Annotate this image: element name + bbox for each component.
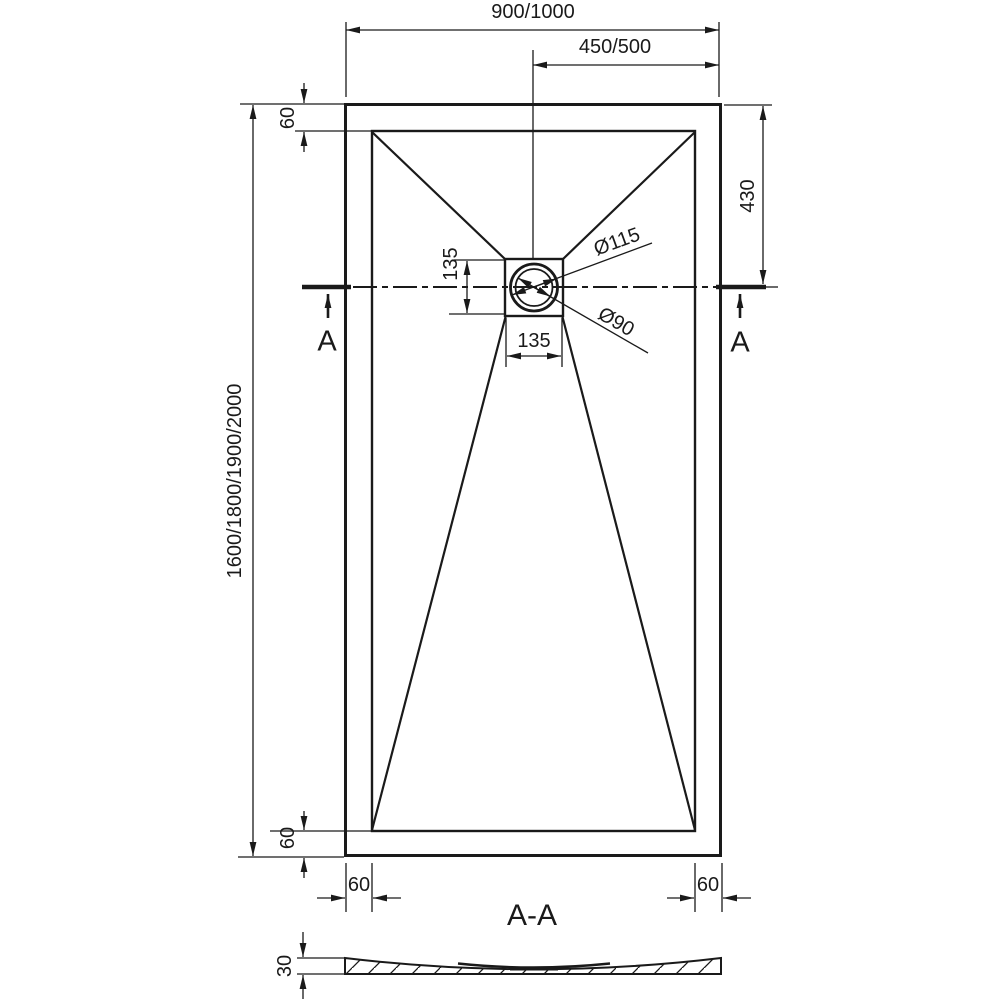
dim-drain-box-width: 135 bbox=[517, 331, 550, 351]
dim-width-to-drain: 450/500 bbox=[579, 37, 651, 57]
dimension-lines bbox=[253, 30, 763, 999]
dim-length-overall: 1600/1800/1900/2000 bbox=[225, 384, 245, 579]
dim-rim-bottom: 60 bbox=[278, 827, 298, 849]
dim-drain-offset-right: 430 bbox=[738, 179, 758, 212]
section-marker-right: A bbox=[730, 329, 749, 358]
section-slab bbox=[345, 958, 721, 974]
dim-rim-bottom-right: 60 bbox=[697, 875, 719, 895]
technical-drawing-canvas: 900/1000 450/500 60 430 1600/1800/1900/2… bbox=[0, 0, 1000, 1000]
dim-rim-bottom-left: 60 bbox=[348, 875, 370, 895]
drawing-geometry bbox=[0, 0, 1000, 1000]
section-marker-left: A bbox=[317, 328, 336, 357]
dim-drain-box-height: 135 bbox=[441, 247, 461, 280]
dim-width-overall: 900/1000 bbox=[491, 2, 574, 22]
dim-rim-top: 60 bbox=[278, 107, 298, 129]
section-title: A-A bbox=[507, 901, 557, 931]
dim-section-thickness: 30 bbox=[275, 955, 295, 977]
